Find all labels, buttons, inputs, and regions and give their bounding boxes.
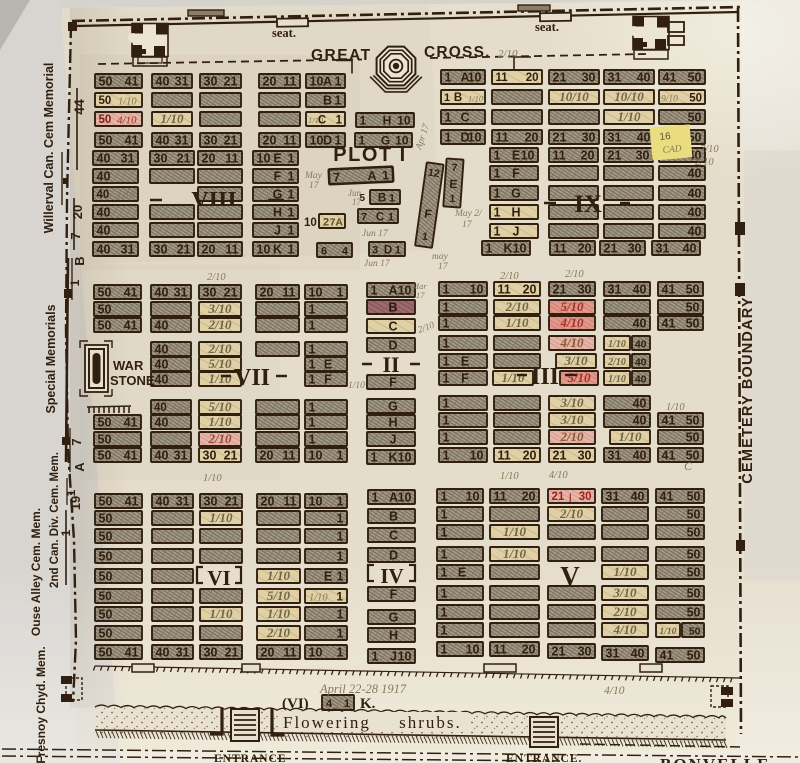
svg-text:20: 20 — [526, 72, 539, 84]
svg-text:21: 21 — [177, 243, 191, 257]
svg-text:1: 1 — [382, 168, 390, 182]
svg-text:50: 50 — [687, 566, 701, 580]
svg-text:41: 41 — [125, 75, 139, 89]
svg-text:1: 1 — [309, 416, 316, 430]
svg-text:21: 21 — [225, 646, 239, 660]
svg-text:1: 1 — [372, 491, 379, 505]
svg-text:41: 41 — [124, 319, 138, 333]
svg-text:1/10: 1/10 — [500, 471, 519, 482]
svg-text:D: D — [323, 134, 332, 148]
svg-text:1/10: 1/10 — [666, 402, 685, 413]
svg-text:1: 1 — [486, 242, 493, 256]
svg-text:41: 41 — [124, 416, 138, 430]
svg-text:16: 16 — [659, 131, 671, 143]
svg-text:4/10: 4/10 — [604, 685, 625, 697]
svg-text:1: 1 — [288, 243, 295, 257]
svg-text:1: 1 — [337, 530, 344, 544]
svg-text:40: 40 — [155, 286, 169, 300]
svg-text:20: 20 — [260, 286, 274, 300]
svg-text:10: 10 — [257, 243, 271, 257]
svg-text:1/10: 1/10 — [267, 606, 291, 621]
svg-text:1: 1 — [359, 134, 366, 148]
svg-text:31: 31 — [606, 647, 620, 661]
svg-text:B: B — [378, 193, 386, 205]
svg-text:A: A — [323, 75, 332, 89]
svg-text:D: D — [389, 549, 398, 563]
svg-text:40: 40 — [155, 373, 169, 387]
svg-text:3/10: 3/10 — [559, 412, 584, 427]
svg-text:11: 11 — [496, 72, 509, 84]
svg-text:2/10: 2/10 — [607, 357, 626, 368]
svg-text:10: 10 — [466, 643, 480, 657]
svg-text:11: 11 — [283, 646, 296, 660]
svg-text:1: 1 — [441, 508, 448, 522]
svg-text:40: 40 — [155, 319, 169, 333]
svg-text:50: 50 — [687, 490, 701, 504]
svg-text:1: 1 — [309, 319, 316, 333]
svg-text:20: 20 — [522, 490, 536, 504]
svg-text:10: 10 — [470, 449, 484, 463]
svg-text:40: 40 — [155, 449, 169, 463]
svg-text:Fresnoy Chyd. Mem.: Fresnoy Chyd. Mem. — [34, 646, 48, 763]
svg-text:7: 7 — [451, 162, 458, 174]
svg-text:Ouse Alley Cem. Mem.: Ouse Alley Cem. Mem. — [29, 508, 43, 636]
svg-text:2/10: 2/10 — [266, 625, 291, 640]
svg-text:10: 10 — [395, 134, 409, 148]
svg-text:K: K — [503, 242, 512, 256]
svg-text:1: 1 — [449, 193, 456, 205]
svg-text:30: 30 — [203, 449, 217, 463]
svg-text:50: 50 — [687, 606, 701, 620]
svg-text:50: 50 — [99, 114, 112, 126]
svg-text:44: 44 — [71, 99, 87, 115]
svg-text:31: 31 — [121, 152, 135, 166]
svg-text:30: 30 — [204, 646, 218, 660]
svg-text:1/10: 1/10 — [172, 405, 189, 415]
svg-text:C: C — [376, 212, 384, 224]
svg-text:1: 1 — [388, 212, 394, 224]
svg-text:21: 21 — [553, 71, 567, 85]
svg-text:50: 50 — [99, 495, 113, 509]
svg-text:1/10: 1/10 — [348, 381, 365, 391]
svg-text:4/10: 4/10 — [117, 115, 137, 127]
svg-text:1: 1 — [395, 245, 401, 257]
svg-text:31: 31 — [606, 490, 620, 504]
svg-text:10: 10 — [309, 286, 323, 300]
svg-text:IX: IX — [574, 191, 602, 218]
svg-text:41: 41 — [663, 71, 677, 85]
svg-text:1: 1 — [337, 627, 344, 641]
svg-text:1: 1 — [288, 224, 295, 238]
svg-text:3/10: 3/10 — [563, 353, 588, 368]
svg-text:F: F — [389, 376, 397, 390]
svg-text:20: 20 — [70, 205, 85, 219]
svg-text:31: 31 — [175, 75, 189, 89]
svg-text:1: 1 — [441, 526, 448, 540]
svg-text:3/10: 3/10 — [612, 585, 637, 600]
svg-text:21: 21 — [553, 449, 567, 463]
svg-text:40: 40 — [635, 339, 647, 351]
svg-text:1: 1 — [309, 303, 316, 317]
svg-text:F: F — [274, 170, 282, 184]
svg-text:4: 4 — [326, 698, 333, 710]
svg-text:1: 1 — [288, 152, 295, 166]
svg-text:21: 21 — [608, 149, 622, 163]
svg-text:50: 50 — [689, 93, 702, 105]
svg-text:40: 40 — [155, 416, 169, 430]
svg-text:11: 11 — [553, 149, 566, 163]
svg-text:April 22-28 1917: April 22-28 1917 — [319, 682, 407, 696]
svg-text:1/10: 1/10 — [118, 97, 137, 108]
svg-text:1: 1 — [441, 643, 448, 657]
svg-text:40: 40 — [688, 167, 702, 181]
svg-text:2: 2 — [323, 217, 329, 229]
svg-text:11: 11 — [283, 75, 296, 89]
svg-text:C: C — [388, 320, 397, 334]
svg-text:10: 10 — [304, 217, 317, 229]
svg-text:4/10: 4/10 — [559, 335, 584, 350]
svg-text:F: F — [390, 588, 398, 602]
svg-text:20: 20 — [522, 643, 536, 657]
svg-text:1: 1 — [336, 114, 343, 126]
svg-text:40: 40 — [633, 414, 647, 428]
svg-text:1: 1 — [309, 343, 316, 357]
svg-text:J: J — [513, 225, 520, 239]
svg-text:40: 40 — [688, 225, 702, 239]
svg-text:6: 6 — [321, 246, 327, 258]
svg-text:1: 1 — [441, 624, 448, 638]
svg-text:20: 20 — [263, 75, 277, 89]
svg-text:40: 40 — [97, 243, 111, 257]
svg-text:50: 50 — [686, 301, 700, 315]
svg-text:1/10: 1/10 — [468, 94, 484, 104]
svg-text:D: D — [388, 339, 397, 353]
svg-text:30: 30 — [636, 149, 650, 163]
svg-text:F: F — [512, 167, 520, 181]
svg-text:50: 50 — [99, 570, 113, 584]
svg-text:2/10: 2/10 — [559, 429, 584, 444]
svg-text:1: 1 — [337, 570, 344, 584]
svg-text:11: 11 — [498, 283, 511, 297]
svg-text:5/10: 5/10 — [560, 299, 584, 314]
svg-text:2/10: 2/10 — [498, 48, 518, 60]
svg-text:10: 10 — [310, 134, 324, 148]
svg-text:20: 20 — [525, 131, 539, 145]
svg-text:2/10: 2/10 — [695, 157, 714, 168]
svg-text:A: A — [460, 71, 469, 85]
svg-text:50: 50 — [688, 71, 702, 85]
svg-text:7/10: 7/10 — [700, 144, 719, 155]
svg-text:40: 40 — [688, 206, 702, 220]
svg-text:40: 40 — [633, 449, 647, 463]
svg-text:A: A — [388, 284, 397, 298]
svg-text:10: 10 — [398, 284, 412, 298]
svg-text:4/10: 4/10 — [559, 315, 584, 330]
svg-text:10: 10 — [310, 75, 324, 89]
svg-text:41: 41 — [124, 449, 138, 463]
svg-text:1/10: 1/10 — [503, 524, 527, 539]
svg-text:1/10: 1/10 — [208, 371, 232, 386]
svg-text:10: 10 — [468, 131, 482, 145]
svg-text:50: 50 — [99, 608, 113, 622]
svg-text:30: 30 — [578, 449, 592, 463]
svg-text:30: 30 — [204, 495, 218, 509]
svg-text:1: 1 — [288, 206, 295, 220]
svg-text:10: 10 — [309, 495, 323, 509]
svg-text:40: 40 — [156, 495, 170, 509]
svg-text:50: 50 — [99, 646, 113, 660]
svg-text:1: 1 — [309, 401, 316, 415]
svg-text:11: 11 — [225, 243, 238, 257]
svg-text:H: H — [511, 206, 520, 220]
svg-text:1/10: 1/10 — [660, 627, 677, 637]
svg-text:40: 40 — [631, 647, 645, 661]
svg-text:2/10: 2/10 — [612, 604, 637, 619]
svg-text:ENTRANCE: ENTRANCE — [214, 753, 287, 763]
svg-text:30: 30 — [628, 242, 642, 256]
svg-text:50: 50 — [98, 319, 112, 333]
svg-text:B: B — [454, 92, 462, 104]
svg-text:41: 41 — [662, 414, 676, 428]
svg-text:30: 30 — [578, 645, 592, 659]
svg-text:1: 1 — [445, 111, 452, 125]
svg-text:11: 11 — [282, 449, 295, 463]
svg-text:1: 1 — [445, 131, 452, 145]
svg-text:21: 21 — [224, 449, 238, 463]
svg-text:10: 10 — [398, 451, 412, 465]
svg-text:9/10: 9/10 — [661, 95, 678, 105]
svg-text:40: 40 — [97, 224, 111, 238]
svg-text:40: 40 — [688, 187, 702, 201]
svg-text:F: F — [324, 373, 332, 387]
svg-text:7: 7 — [333, 170, 341, 184]
svg-text:1: 1 — [443, 301, 450, 315]
svg-text:1: 1 — [441, 566, 448, 580]
svg-text:1: 1 — [337, 550, 344, 564]
svg-text:21: 21 — [224, 286, 238, 300]
svg-text:10: 10 — [468, 71, 482, 85]
svg-text:A: A — [389, 491, 398, 505]
svg-text:2nd Can. Div. Cem. Mem.: 2nd Can. Div. Cem. Mem. — [49, 452, 61, 588]
svg-text:E: E — [449, 177, 458, 192]
svg-text:30: 30 — [204, 134, 218, 148]
svg-text:50: 50 — [98, 449, 112, 463]
svg-text:1: 1 — [443, 283, 450, 297]
svg-text:31: 31 — [176, 495, 190, 509]
svg-text:J: J — [274, 224, 281, 238]
svg-text:11: 11 — [282, 286, 295, 300]
svg-text:J: J — [390, 433, 397, 447]
svg-text:50: 50 — [687, 649, 701, 663]
svg-text:40: 40 — [154, 402, 167, 414]
svg-text:1/10: 1/10 — [618, 429, 642, 444]
svg-text:II: II — [382, 352, 399, 377]
svg-text:50: 50 — [687, 548, 701, 562]
svg-text:20: 20 — [261, 646, 275, 660]
svg-text:10: 10 — [398, 491, 412, 505]
svg-text:10: 10 — [257, 152, 271, 166]
svg-text:3/10: 3/10 — [559, 395, 584, 410]
svg-text:E: E — [512, 149, 520, 163]
svg-text:5/10: 5/10 — [267, 588, 291, 603]
svg-text:2/10: 2/10 — [207, 317, 232, 332]
svg-text:1/10: 1/10 — [309, 593, 328, 604]
svg-text:1/10: 1/10 — [209, 606, 233, 621]
svg-text:1/10: 1/10 — [613, 564, 637, 579]
svg-text:1: 1 — [336, 590, 343, 604]
svg-text:1: 1 — [337, 512, 344, 526]
svg-text:40: 40 — [97, 206, 111, 220]
svg-text:seat.: seat. — [272, 26, 296, 40]
svg-text:1: 1 — [443, 449, 450, 463]
svg-text:31: 31 — [608, 131, 622, 145]
svg-text:1: 1 — [68, 279, 82, 286]
svg-text:1: 1 — [441, 490, 448, 504]
svg-text:2/10: 2/10 — [500, 271, 519, 282]
svg-text:5/10: 5/10 — [567, 370, 591, 385]
svg-text:1: 1 — [337, 495, 344, 509]
svg-text:40: 40 — [633, 283, 647, 297]
svg-text:50: 50 — [99, 512, 113, 526]
svg-text:GREAT: GREAT — [311, 47, 372, 64]
svg-text:G: G — [511, 187, 521, 201]
svg-text:K: K — [273, 243, 282, 257]
svg-text:20: 20 — [261, 495, 275, 509]
svg-text:40: 40 — [156, 134, 170, 148]
svg-text:1: 1 — [360, 114, 367, 128]
svg-text:50: 50 — [687, 508, 701, 522]
svg-text:4: 4 — [342, 246, 349, 258]
svg-text:STONE: STONE — [110, 373, 155, 388]
svg-text:31: 31 — [174, 449, 188, 463]
svg-text:H: H — [389, 629, 398, 643]
svg-text:21: 21 — [225, 495, 239, 509]
svg-text:21: 21 — [224, 134, 238, 148]
svg-text:30: 30 — [203, 286, 217, 300]
svg-text:41: 41 — [662, 283, 676, 297]
svg-text:50: 50 — [99, 627, 113, 641]
svg-text:10/10: 10/10 — [614, 89, 644, 104]
svg-text:40: 40 — [97, 189, 110, 201]
svg-text:31: 31 — [608, 449, 622, 463]
svg-text:40: 40 — [156, 646, 170, 660]
svg-text:C: C — [684, 459, 693, 473]
svg-text:May 2/: May 2/ — [454, 209, 483, 219]
svg-text:Jun 17: Jun 17 — [364, 259, 391, 269]
svg-text:40: 40 — [637, 131, 651, 145]
svg-text:19: 19 — [68, 496, 83, 510]
svg-text:50: 50 — [686, 283, 700, 297]
svg-text:20: 20 — [581, 149, 595, 163]
svg-text:20: 20 — [523, 449, 537, 463]
svg-text:20: 20 — [578, 242, 592, 256]
svg-text:40: 40 — [97, 152, 111, 166]
svg-text:41: 41 — [124, 286, 138, 300]
svg-text:1: 1 — [443, 337, 450, 351]
svg-text:20: 20 — [202, 243, 216, 257]
svg-text:41: 41 — [125, 495, 139, 509]
svg-text:A: A — [367, 169, 377, 183]
svg-text:21: 21 — [177, 152, 191, 166]
svg-text:2/10: 2/10 — [559, 506, 584, 521]
svg-text:11: 11 — [498, 449, 511, 463]
svg-text:VI: VI — [207, 566, 230, 590]
svg-text:41: 41 — [662, 317, 676, 331]
svg-text:7: 7 — [68, 232, 83, 239]
svg-text:50: 50 — [99, 550, 113, 564]
svg-text:E: E — [458, 566, 466, 580]
svg-text:7: 7 — [69, 438, 84, 445]
svg-text:E: E — [324, 358, 332, 372]
svg-text:1: 1 — [441, 548, 448, 562]
svg-text:21: 21 — [553, 131, 567, 145]
svg-text:20: 20 — [263, 134, 277, 148]
svg-text:1/10: 1/10 — [119, 593, 137, 604]
svg-text:K: K — [388, 451, 397, 465]
svg-text:30: 30 — [154, 243, 168, 257]
svg-text:A: A — [72, 462, 87, 472]
svg-text:1: 1 — [59, 529, 73, 536]
svg-text:41: 41 — [660, 649, 674, 663]
svg-text:7A: 7A — [330, 217, 344, 229]
svg-text:VII: VII — [234, 365, 270, 391]
svg-text:1: 1 — [337, 608, 344, 622]
svg-text:31: 31 — [176, 646, 190, 660]
svg-text:C: C — [389, 529, 398, 543]
svg-text:21: 21 — [604, 242, 618, 256]
svg-text:30: 30 — [582, 131, 596, 145]
svg-text:50: 50 — [686, 317, 700, 331]
svg-text:Flowering shrubs.: Flowering shrubs. — [283, 713, 462, 732]
svg-text:11: 11 — [283, 495, 296, 509]
svg-text:E: E — [461, 355, 469, 369]
svg-text:50: 50 — [687, 587, 701, 601]
svg-text:31: 31 — [121, 243, 135, 257]
svg-text:10: 10 — [466, 490, 480, 504]
svg-text:30: 30 — [578, 283, 592, 297]
svg-text:BONVELLE: BONVELLE — [660, 755, 770, 763]
svg-text:1: 1 — [344, 698, 350, 710]
svg-text:50: 50 — [98, 416, 112, 430]
svg-text:1: 1 — [309, 358, 316, 372]
svg-text:10/10: 10/10 — [559, 89, 589, 104]
svg-text:1: 1 — [335, 94, 342, 108]
svg-text:B: B — [389, 510, 398, 524]
svg-text:1/10: 1/10 — [501, 370, 525, 385]
svg-text:10: 10 — [521, 149, 535, 163]
svg-text:IV: IV — [380, 564, 403, 588]
svg-text:10: 10 — [513, 242, 527, 256]
svg-text:31: 31 — [608, 283, 622, 297]
svg-text:seat.: seat. — [535, 20, 559, 34]
svg-text:10: 10 — [397, 114, 411, 128]
svg-text:11: 11 — [494, 643, 507, 657]
svg-text:B: B — [388, 301, 397, 315]
svg-text:21: 21 — [224, 75, 238, 89]
svg-text:40: 40 — [637, 71, 651, 85]
svg-text:1: 1 — [443, 355, 450, 369]
svg-text:50: 50 — [99, 75, 113, 89]
svg-text:Willerval Can. Cem Memorial: Willerval Can. Cem Memorial — [42, 63, 56, 234]
svg-text:40: 40 — [97, 170, 111, 184]
svg-text:31: 31 — [175, 134, 189, 148]
svg-text:50: 50 — [99, 95, 112, 107]
svg-text:1: 1 — [494, 149, 501, 163]
svg-text:41: 41 — [125, 646, 139, 660]
svg-text:2/10: 2/10 — [207, 272, 226, 283]
svg-text:11: 11 — [554, 242, 567, 256]
svg-text:41: 41 — [662, 449, 676, 463]
